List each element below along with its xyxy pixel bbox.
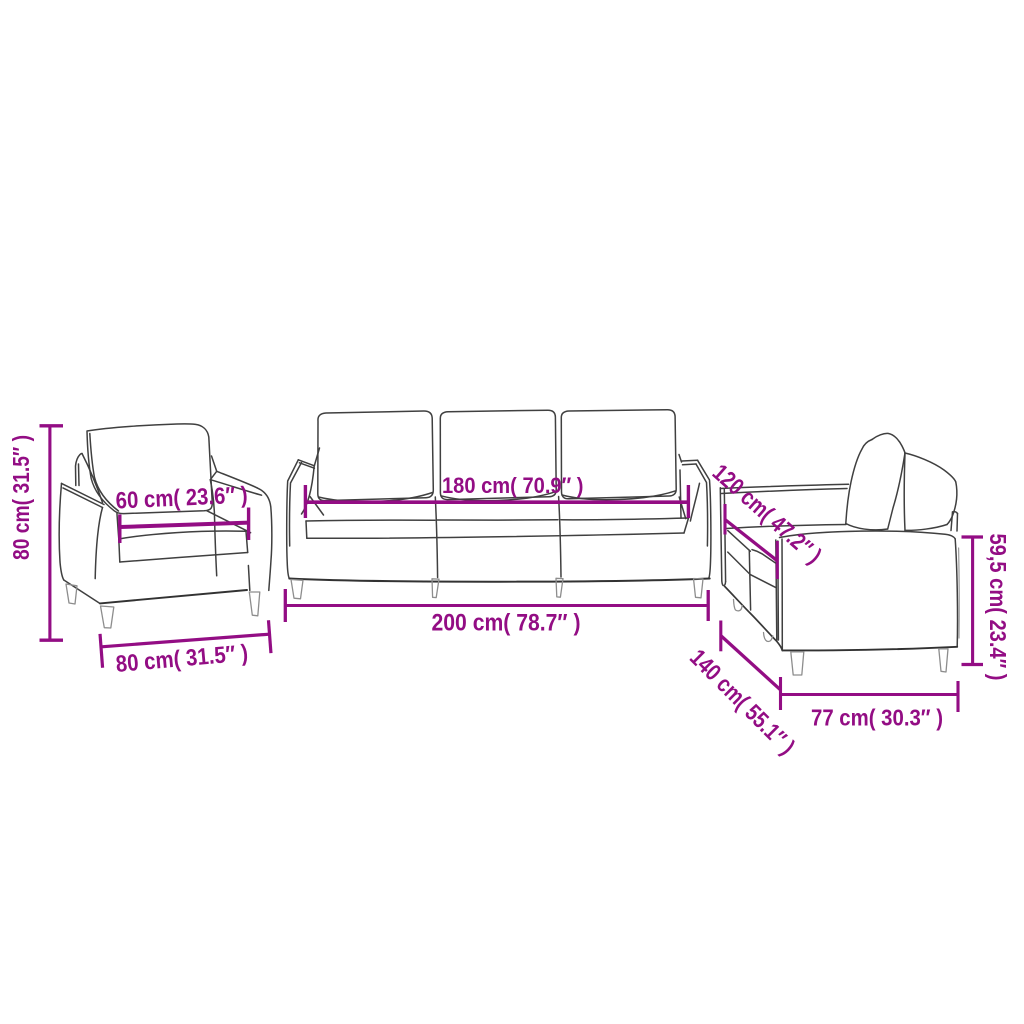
svg-text:140 cm( 55.1″ ): 140 cm( 55.1″ ) [685,644,800,759]
svg-text:60 cm( 23.6″ ): 60 cm( 23.6″ ) [115,482,248,514]
svg-text:77 cm( 30.3″ ): 77 cm( 30.3″ ) [811,705,943,731]
svg-text:180 cm( 70.9″ ): 180 cm( 70.9″ ) [442,473,584,498]
svg-text:200 cm( 78.7″ ): 200 cm( 78.7″ ) [432,610,581,637]
svg-text:59,5 cm( 23.4″ ): 59,5 cm( 23.4″ ) [985,534,1011,681]
svg-text:80 cm( 31.5″ ): 80 cm( 31.5″ ) [8,435,34,560]
